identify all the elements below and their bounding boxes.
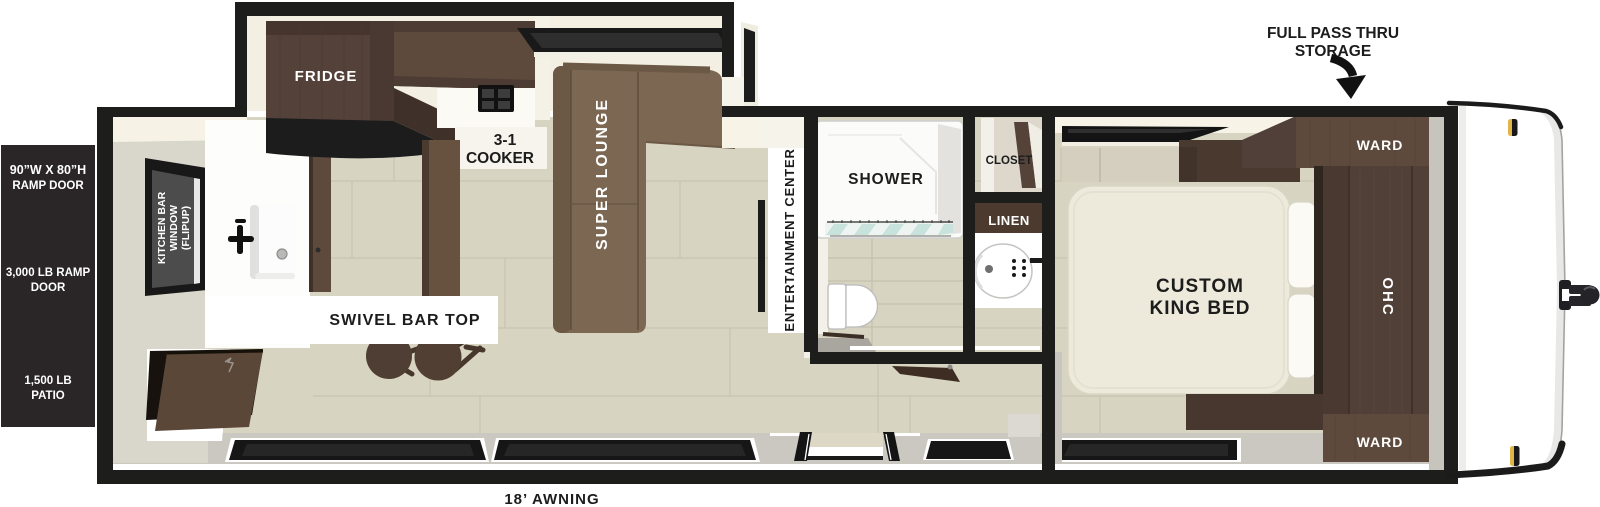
svg-text:FRIDGE: FRIDGE xyxy=(295,68,358,85)
svg-text:KING BED: KING BED xyxy=(1150,298,1251,319)
svg-text:90”W X 80”H: 90”W X 80”H xyxy=(10,163,86,177)
svg-text:SHOWER: SHOWER xyxy=(848,171,924,188)
svg-text:LINEN: LINEN xyxy=(988,213,1030,228)
svg-text:OHC: OHC xyxy=(1379,277,1396,316)
svg-text:(FLIPUP): (FLIPUP) xyxy=(180,206,192,250)
svg-text:ENTERTAINMENT CENTER: ENTERTAINMENT CENTER xyxy=(782,148,797,331)
svg-text:COOKER: COOKER xyxy=(466,150,534,167)
svg-text:CLOSET: CLOSET xyxy=(986,155,1033,167)
svg-text:WINDOW: WINDOW xyxy=(168,205,180,251)
svg-text:WARD: WARD xyxy=(1357,137,1404,153)
svg-text:3-1: 3-1 xyxy=(494,132,517,149)
svg-text:18’ AWNING: 18’ AWNING xyxy=(504,491,599,507)
svg-text:SUPER LOUNGE: SUPER LOUNGE xyxy=(594,98,611,250)
svg-text:WARD: WARD xyxy=(1357,434,1404,450)
svg-text:RAMP DOOR: RAMP DOOR xyxy=(12,180,84,192)
svg-text:3,000 LB RAMP: 3,000 LB RAMP xyxy=(6,267,91,279)
svg-text:1,500 LB: 1,500 LB xyxy=(24,375,71,387)
svg-text:DOOR: DOOR xyxy=(31,282,66,294)
svg-text:PATIO: PATIO xyxy=(31,390,64,402)
svg-text:SWIVEL BAR TOP: SWIVEL BAR TOP xyxy=(329,312,480,329)
svg-text:CUSTOM: CUSTOM xyxy=(1156,276,1244,297)
svg-text:FULL PASS THRU: FULL PASS THRU xyxy=(1267,25,1399,42)
svg-text:KITCHEN BAR: KITCHEN BAR xyxy=(156,191,168,264)
